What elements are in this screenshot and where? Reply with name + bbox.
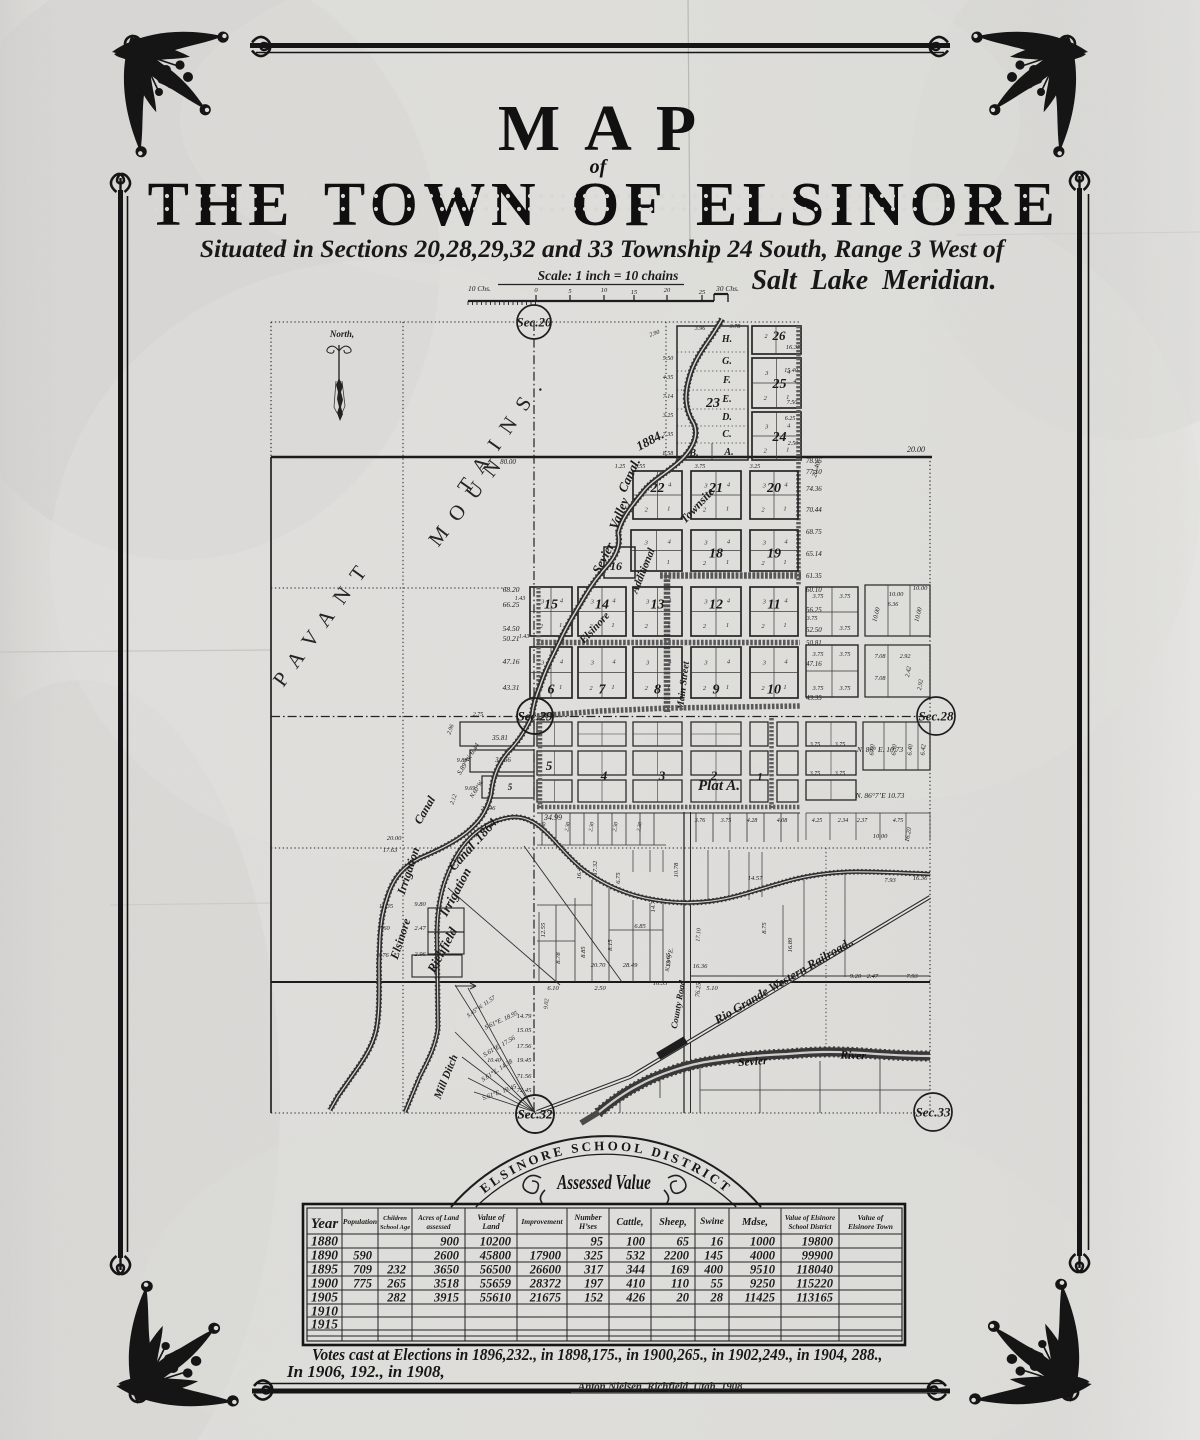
svg-text:5: 5 <box>546 758 553 773</box>
svg-text:25: 25 <box>699 289 706 296</box>
svg-text:School Age: School Age <box>380 1224 410 1231</box>
svg-text:400: 400 <box>703 1263 724 1277</box>
svg-text:16.89: 16.89 <box>787 937 794 952</box>
svg-text:25: 25 <box>772 377 787 392</box>
svg-text:3.25: 3.25 <box>749 464 761 470</box>
svg-text:1: 1 <box>559 684 562 691</box>
svg-text:56500: 56500 <box>480 1263 512 1277</box>
svg-text:1895: 1895 <box>311 1262 338 1277</box>
svg-text:55: 55 <box>711 1277 724 1291</box>
svg-text:Scale: 1 inch = 10 chains: Scale: 1 inch = 10 chains <box>538 268 679 283</box>
svg-text:Children: Children <box>383 1215 407 1222</box>
svg-text:3915: 3915 <box>433 1291 459 1305</box>
svg-text:17.32: 17.32 <box>592 860 599 875</box>
svg-text:15: 15 <box>544 598 558 613</box>
svg-text:6.42: 6.42 <box>920 743 928 756</box>
svg-text:3518: 3518 <box>433 1277 460 1291</box>
svg-text:Situated in Sections 20,28,29,: Situated in Sections 20,28,29,32 and 33 … <box>200 234 1007 263</box>
svg-text:3: 3 <box>645 599 650 606</box>
svg-text:11.35: 11.35 <box>379 903 394 910</box>
svg-text:3.75: 3.75 <box>812 651 824 658</box>
svg-text:7.14: 7.14 <box>663 393 674 400</box>
svg-text:20.00: 20.00 <box>387 835 402 842</box>
svg-text:20.00: 20.00 <box>907 445 925 454</box>
svg-text:1: 1 <box>726 684 729 691</box>
svg-text:9.02: 9.02 <box>544 998 551 1009</box>
svg-text:3: 3 <box>764 423 769 430</box>
svg-text:10: 10 <box>767 683 781 698</box>
svg-text:THE TOWN OF ELSINORE: THE TOWN OF ELSINORE <box>148 171 1061 239</box>
svg-text:C.: C. <box>722 429 731 440</box>
svg-text:7.60: 7.60 <box>378 925 390 932</box>
svg-text:2.34: 2.34 <box>838 817 849 824</box>
svg-text:3.75: 3.75 <box>834 771 846 777</box>
svg-text:72.45: 72.45 <box>517 1087 532 1094</box>
svg-text:6.25: 6.25 <box>785 416 796 422</box>
svg-text:10: 10 <box>601 287 608 294</box>
svg-text:H’ses: H’ses <box>578 1222 597 1231</box>
svg-text:26: 26 <box>772 328 787 343</box>
svg-text:7.08: 7.08 <box>875 653 887 660</box>
svg-text:Salt Lake Meridian.: Salt Lake Meridian. <box>751 265 996 296</box>
svg-text:10.40: 10.40 <box>487 1057 501 1064</box>
svg-text:1900: 1900 <box>311 1276 338 1291</box>
svg-text:4.75: 4.75 <box>893 817 904 824</box>
svg-text:E.: E. <box>721 394 731 405</box>
svg-text:Value of: Value of <box>477 1213 506 1222</box>
svg-text:1890: 1890 <box>311 1248 338 1263</box>
svg-text:113165: 113165 <box>796 1291 833 1305</box>
svg-text:6.75: 6.75 <box>615 872 622 884</box>
svg-text:9250: 9250 <box>750 1277 776 1291</box>
svg-text:2.37: 2.37 <box>857 818 869 824</box>
svg-text:17.63: 17.63 <box>383 847 398 854</box>
svg-text:34.99: 34.99 <box>543 813 562 822</box>
svg-text:11: 11 <box>767 598 780 613</box>
svg-text:68.75: 68.75 <box>806 528 822 536</box>
svg-text:4.28: 4.28 <box>747 817 758 824</box>
svg-text:1000: 1000 <box>750 1235 776 1249</box>
svg-text:A.: A. <box>723 447 733 458</box>
svg-text:3.76: 3.76 <box>376 952 389 959</box>
svg-text:115220: 115220 <box>796 1277 834 1291</box>
svg-text:10.00: 10.00 <box>889 591 904 598</box>
svg-text:99900: 99900 <box>802 1249 834 1263</box>
svg-text:4000: 4000 <box>749 1249 776 1263</box>
svg-text:3.75: 3.75 <box>839 651 851 658</box>
svg-text:20: 20 <box>664 287 671 294</box>
svg-text:In 1906, 192., in 1908,: In 1906, 192., in 1908, <box>286 1362 445 1381</box>
svg-text:2600: 2600 <box>433 1249 460 1263</box>
svg-text:28372: 28372 <box>529 1277 561 1291</box>
svg-text:118040: 118040 <box>796 1263 834 1277</box>
svg-text:7.93: 7.93 <box>906 973 918 980</box>
svg-text:76.25: 76.25 <box>694 982 702 998</box>
svg-text:8: 8 <box>654 683 661 698</box>
svg-text:410: 410 <box>625 1277 646 1291</box>
svg-text:7.93: 7.93 <box>884 877 896 884</box>
svg-text:1: 1 <box>726 505 729 512</box>
svg-text:19: 19 <box>767 547 781 562</box>
svg-text:3: 3 <box>644 539 649 546</box>
svg-text:7.08: 7.08 <box>875 675 887 682</box>
svg-text:9.20 - 2.47: 9.20 - 2.47 <box>850 973 879 980</box>
svg-text:74.36: 74.36 <box>806 485 822 493</box>
svg-text:3: 3 <box>762 599 767 606</box>
svg-text:10.78: 10.78 <box>673 862 680 877</box>
svg-text:4.08: 4.08 <box>777 817 788 824</box>
svg-text:265: 265 <box>386 1277 406 1291</box>
svg-text:10200: 10200 <box>480 1235 512 1249</box>
svg-text:6.10: 6.10 <box>547 985 559 992</box>
svg-text:6.85: 6.85 <box>634 923 646 930</box>
svg-text:20.70: 20.70 <box>591 962 606 969</box>
svg-text:15: 15 <box>631 289 638 296</box>
svg-text:1: 1 <box>726 559 729 566</box>
svg-text:15.40: 15.40 <box>784 367 798 374</box>
svg-text:20: 20 <box>766 481 781 496</box>
svg-text:317: 317 <box>583 1263 604 1277</box>
svg-text:1905: 1905 <box>311 1290 338 1305</box>
svg-text:9510: 9510 <box>750 1263 776 1277</box>
svg-text:56.25: 56.25 <box>806 606 822 614</box>
svg-text:10.00: 10.00 <box>873 833 888 840</box>
svg-text:55659: 55659 <box>480 1277 512 1291</box>
svg-text:Acres of Land: Acres of Land <box>417 1214 459 1222</box>
svg-text:344: 344 <box>625 1263 645 1277</box>
svg-text:70.44: 70.44 <box>806 506 822 514</box>
svg-text:School District: School District <box>789 1223 833 1231</box>
svg-text:Improvement: Improvement <box>520 1217 563 1226</box>
svg-text:5.10: 5.10 <box>706 985 718 992</box>
svg-text:45800: 45800 <box>479 1249 512 1263</box>
svg-text:1: 1 <box>667 622 670 629</box>
svg-text:10.00: 10.00 <box>913 585 928 592</box>
svg-text:145: 145 <box>704 1249 723 1263</box>
svg-text:35.81: 35.81 <box>491 734 508 742</box>
svg-text:100: 100 <box>626 1235 646 1249</box>
svg-text:1: 1 <box>783 622 786 629</box>
svg-text:1: 1 <box>667 505 670 512</box>
svg-text:N. 86° E. 10.73: N. 86° E. 10.73 <box>856 745 904 754</box>
svg-text:14.57: 14.57 <box>748 875 763 882</box>
svg-text:N. 86°7’E 10.73: N. 86°7’E 10.73 <box>855 791 905 800</box>
svg-text:282: 282 <box>386 1291 406 1305</box>
svg-text:8.85: 8.85 <box>580 946 587 958</box>
svg-text:Sec.32: Sec.32 <box>517 1107 553 1122</box>
svg-text:Number: Number <box>573 1213 602 1222</box>
svg-text:1: 1 <box>783 684 786 691</box>
svg-text:47.16: 47.16 <box>806 660 822 668</box>
svg-text:3.96: 3.96 <box>694 326 706 332</box>
svg-text:709: 709 <box>353 1263 373 1277</box>
svg-text:426: 426 <box>625 1291 646 1305</box>
svg-text:775: 775 <box>353 1277 372 1291</box>
svg-text:65.14: 65.14 <box>806 550 822 558</box>
svg-text:2.47: 2.47 <box>414 925 426 932</box>
svg-text:7: 7 <box>599 683 607 698</box>
svg-text:1: 1 <box>726 622 729 629</box>
svg-text:23: 23 <box>705 396 720 411</box>
svg-text:1: 1 <box>611 684 614 691</box>
svg-text:8.78: 8.78 <box>555 952 562 964</box>
svg-text:Anton Nielsen, Richfie: Anton Nielsen, Richfield, Utah. 1908. <box>577 1381 745 1394</box>
svg-text:Plat A.: Plat A. <box>698 778 740 794</box>
svg-text:D.: D. <box>721 412 732 423</box>
svg-text:50.21: 50.21 <box>503 634 520 643</box>
svg-text:232: 232 <box>386 1263 406 1277</box>
svg-text:Swine: Swine <box>700 1217 725 1227</box>
svg-text:3.75: 3.75 <box>834 742 846 748</box>
svg-text:10 Chs.: 10 Chs. <box>468 284 491 293</box>
svg-text:169: 169 <box>670 1263 690 1277</box>
svg-text:8.15: 8.15 <box>607 939 614 951</box>
svg-text:Sec.20: Sec.20 <box>516 315 552 330</box>
svg-text:1: 1 <box>611 622 614 629</box>
svg-text:52.50: 52.50 <box>806 626 822 634</box>
svg-text:1915: 1915 <box>311 1317 338 1332</box>
svg-text:3.75: 3.75 <box>839 685 851 692</box>
svg-text:3: 3 <box>658 768 666 783</box>
svg-text:325: 325 <box>583 1249 603 1263</box>
svg-text:3.75: 3.75 <box>694 464 706 470</box>
svg-text:15.05: 15.05 <box>517 1027 532 1034</box>
svg-text:900: 900 <box>440 1235 460 1249</box>
svg-text:28.49: 28.49 <box>623 962 638 969</box>
svg-text:Year: Year <box>311 1216 339 1232</box>
svg-text:1.43: 1.43 <box>515 595 526 602</box>
svg-text:43.35: 43.35 <box>806 694 822 702</box>
svg-text:3: 3 <box>762 539 767 546</box>
svg-text:1880: 1880 <box>311 1234 338 1249</box>
svg-text:590: 590 <box>353 1249 373 1263</box>
svg-text:17.10: 17.10 <box>695 928 702 942</box>
svg-text:Mdse,: Mdse, <box>741 1217 768 1228</box>
svg-text:1: 1 <box>559 622 562 629</box>
svg-text:Value of: Value of <box>858 1213 885 1222</box>
svg-text:95: 95 <box>591 1235 604 1249</box>
svg-text:3.75: 3.75 <box>809 771 821 777</box>
svg-text:3: 3 <box>764 370 769 377</box>
svg-text:16.35: 16.35 <box>653 980 668 987</box>
svg-text:17.56: 17.56 <box>517 1043 532 1050</box>
svg-text:2200: 2200 <box>663 1249 690 1263</box>
svg-text:1: 1 <box>667 559 670 566</box>
svg-text:3.76: 3.76 <box>694 818 706 824</box>
svg-text:3.75: 3.75 <box>806 615 818 622</box>
svg-text:1: 1 <box>783 505 786 512</box>
svg-text:9: 9 <box>713 683 720 698</box>
svg-text:6.36: 6.36 <box>888 602 899 608</box>
svg-text:26600: 26600 <box>529 1263 562 1277</box>
svg-text:30 Chs.: 30 Chs. <box>715 284 739 293</box>
svg-text:47.16: 47.16 <box>503 657 520 666</box>
svg-text:110: 110 <box>671 1277 690 1291</box>
svg-text:Sec.28: Sec.28 <box>918 709 954 724</box>
svg-text:4.35: 4.35 <box>663 374 674 381</box>
svg-text:3.75: 3.75 <box>812 685 824 692</box>
svg-text:13: 13 <box>651 598 665 613</box>
svg-text:1: 1 <box>783 559 786 566</box>
svg-text:3650: 3650 <box>433 1263 460 1277</box>
svg-text:19.45: 19.45 <box>517 1057 532 1064</box>
svg-text:2.50: 2.50 <box>594 985 606 992</box>
svg-text:50.81: 50.81 <box>806 639 822 647</box>
svg-text:152: 152 <box>584 1291 603 1305</box>
svg-text:21675: 21675 <box>529 1291 561 1305</box>
svg-text:Sheep,: Sheep, <box>659 1217 687 1228</box>
svg-text:Sec.29: Sec.29 <box>517 709 553 724</box>
svg-text:11425: 11425 <box>744 1291 775 1305</box>
svg-text:19800: 19800 <box>802 1235 834 1249</box>
svg-text:MAP: MAP <box>498 92 720 165</box>
svg-text:4.25: 4.25 <box>812 817 823 824</box>
svg-text:3: 3 <box>762 659 767 666</box>
svg-text:3.78: 3.78 <box>729 324 741 330</box>
svg-text:H.: H. <box>721 334 732 345</box>
svg-text:5: 5 <box>508 782 513 792</box>
svg-text:43.31: 43.31 <box>503 683 520 692</box>
svg-text:F.: F. <box>722 375 731 386</box>
svg-text:20: 20 <box>676 1291 690 1305</box>
svg-text:Land: Land <box>481 1222 500 1231</box>
svg-text:3: 3 <box>590 659 595 666</box>
svg-text:2.75: 2.75 <box>473 712 484 718</box>
svg-text:55610: 55610 <box>480 1291 512 1305</box>
svg-text:1: 1 <box>757 771 763 783</box>
svg-text:17900: 17900 <box>530 1249 562 1263</box>
svg-text:54.50: 54.50 <box>503 624 520 633</box>
svg-text:2.92: 2.92 <box>900 653 911 660</box>
svg-text:68.20: 68.20 <box>503 585 520 594</box>
svg-text:9.80: 9.80 <box>414 901 426 908</box>
svg-text:1: 1 <box>786 446 789 453</box>
svg-text:3.75: 3.75 <box>812 593 824 600</box>
svg-text:assessed: assessed <box>426 1223 451 1231</box>
svg-text:8.58: 8.58 <box>663 451 674 457</box>
svg-text:61.35: 61.35 <box>806 572 822 580</box>
svg-text:5.50: 5.50 <box>663 356 674 362</box>
svg-text:Cattle,: Cattle, <box>617 1217 644 1228</box>
svg-text:1: 1 <box>667 684 670 691</box>
svg-text:1.43: 1.43 <box>519 633 530 640</box>
svg-text:532: 532 <box>626 1249 645 1263</box>
svg-text:4: 4 <box>600 768 608 783</box>
svg-text:3: 3 <box>645 659 650 666</box>
svg-text:16: 16 <box>711 1235 724 1249</box>
svg-text:3.75: 3.75 <box>809 742 821 748</box>
svg-text:3.75: 3.75 <box>839 625 851 632</box>
svg-text:North,: North, <box>329 329 354 339</box>
svg-text:16.36: 16.36 <box>693 963 708 970</box>
svg-text:Sevier: Sevier <box>738 1055 769 1069</box>
svg-text:Population: Population <box>343 1217 377 1226</box>
svg-text:3: 3 <box>540 659 545 666</box>
svg-text:12.55: 12.55 <box>540 922 547 937</box>
svg-text:Value of Elsinore: Value of Elsinore <box>785 1214 835 1222</box>
svg-text:197: 197 <box>584 1277 604 1291</box>
svg-text:3.75: 3.75 <box>720 818 732 824</box>
svg-text:8.75: 8.75 <box>761 922 768 934</box>
svg-text:River: River <box>839 1050 866 1063</box>
svg-text:65: 65 <box>677 1235 690 1249</box>
svg-text:2: 2 <box>765 334 768 340</box>
svg-text:3.75: 3.75 <box>839 593 851 600</box>
svg-text:71.56: 71.56 <box>517 1073 532 1080</box>
svg-text:24: 24 <box>772 430 787 445</box>
svg-text:18: 18 <box>709 547 723 562</box>
svg-text:6: 6 <box>548 683 555 698</box>
svg-text:7.50: 7.50 <box>787 400 798 406</box>
svg-text:3.25: 3.25 <box>662 413 674 419</box>
svg-text:G.: G. <box>722 356 732 367</box>
svg-text:4: 4 <box>794 378 797 385</box>
svg-text:28: 28 <box>710 1291 724 1305</box>
svg-text:14.79: 14.79 <box>517 1013 532 1020</box>
svg-text:Assessed Value: Assessed Value <box>556 1171 650 1194</box>
svg-text:12: 12 <box>709 598 723 613</box>
svg-text:Elsinore Town: Elsinore Town <box>847 1222 893 1231</box>
svg-text:6.40: 6.40 <box>907 743 915 756</box>
svg-text:Sec.33: Sec.33 <box>915 1105 951 1120</box>
svg-text:2.96: 2.96 <box>414 951 426 958</box>
